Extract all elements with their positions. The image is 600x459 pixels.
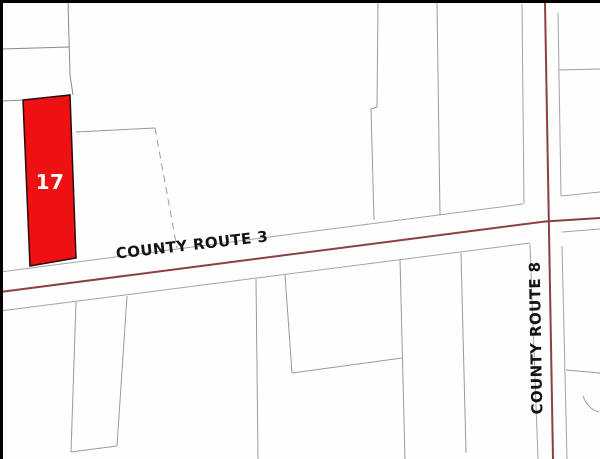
parcel-line bbox=[285, 275, 292, 373]
parcel-line bbox=[76, 128, 155, 132]
parcel-map: 17 COUNTY ROUTE 3 COUNTY ROUTE 8 bbox=[0, 0, 600, 459]
parcel-line bbox=[400, 259, 405, 459]
parcel-line bbox=[566, 370, 600, 373]
county-route-8-label: COUNTY ROUTE 8 bbox=[526, 261, 547, 414]
parcel-line bbox=[2, 47, 69, 49]
road-centerline-route-8 bbox=[545, 3, 553, 459]
road-edge-west-north bbox=[522, 4, 524, 204]
road-edge-east-south bbox=[562, 246, 567, 459]
parcel-line-dashed bbox=[155, 128, 177, 248]
road-edge-lower bbox=[0, 243, 530, 311]
county-route-3-label: COUNTY ROUTE 3 bbox=[115, 227, 269, 262]
parcel-17-label: 17 bbox=[36, 170, 65, 194]
parcel-line bbox=[559, 69, 600, 70]
road-edge-upper-east bbox=[561, 192, 600, 196]
map-canvas: 17 COUNTY ROUTE 3 COUNTY ROUTE 8 bbox=[0, 0, 600, 459]
parcel-line bbox=[461, 253, 466, 453]
parcel-line bbox=[71, 302, 76, 452]
parcel-line bbox=[292, 358, 402, 373]
map-border-top bbox=[0, 0, 600, 3]
parcel-line bbox=[256, 279, 258, 459]
road-edge-lower-east bbox=[562, 229, 600, 232]
map-border-left bbox=[0, 0, 3, 459]
parcel-line bbox=[71, 446, 117, 452]
parcel-line bbox=[2, 100, 23, 101]
highlighted-parcel-17: 17 bbox=[23, 95, 76, 266]
road-centerline-route-3 bbox=[0, 218, 600, 292]
parcel-line bbox=[437, 2, 440, 215]
parcel-line bbox=[117, 296, 127, 446]
parcel-line bbox=[371, 2, 378, 220]
parcel-line bbox=[68, 2, 73, 95]
county-route-3-road bbox=[0, 192, 600, 311]
parcel-lines-south bbox=[71, 253, 466, 459]
parcel-line-curve bbox=[583, 396, 599, 412]
road-edge-east-north bbox=[558, 13, 561, 196]
